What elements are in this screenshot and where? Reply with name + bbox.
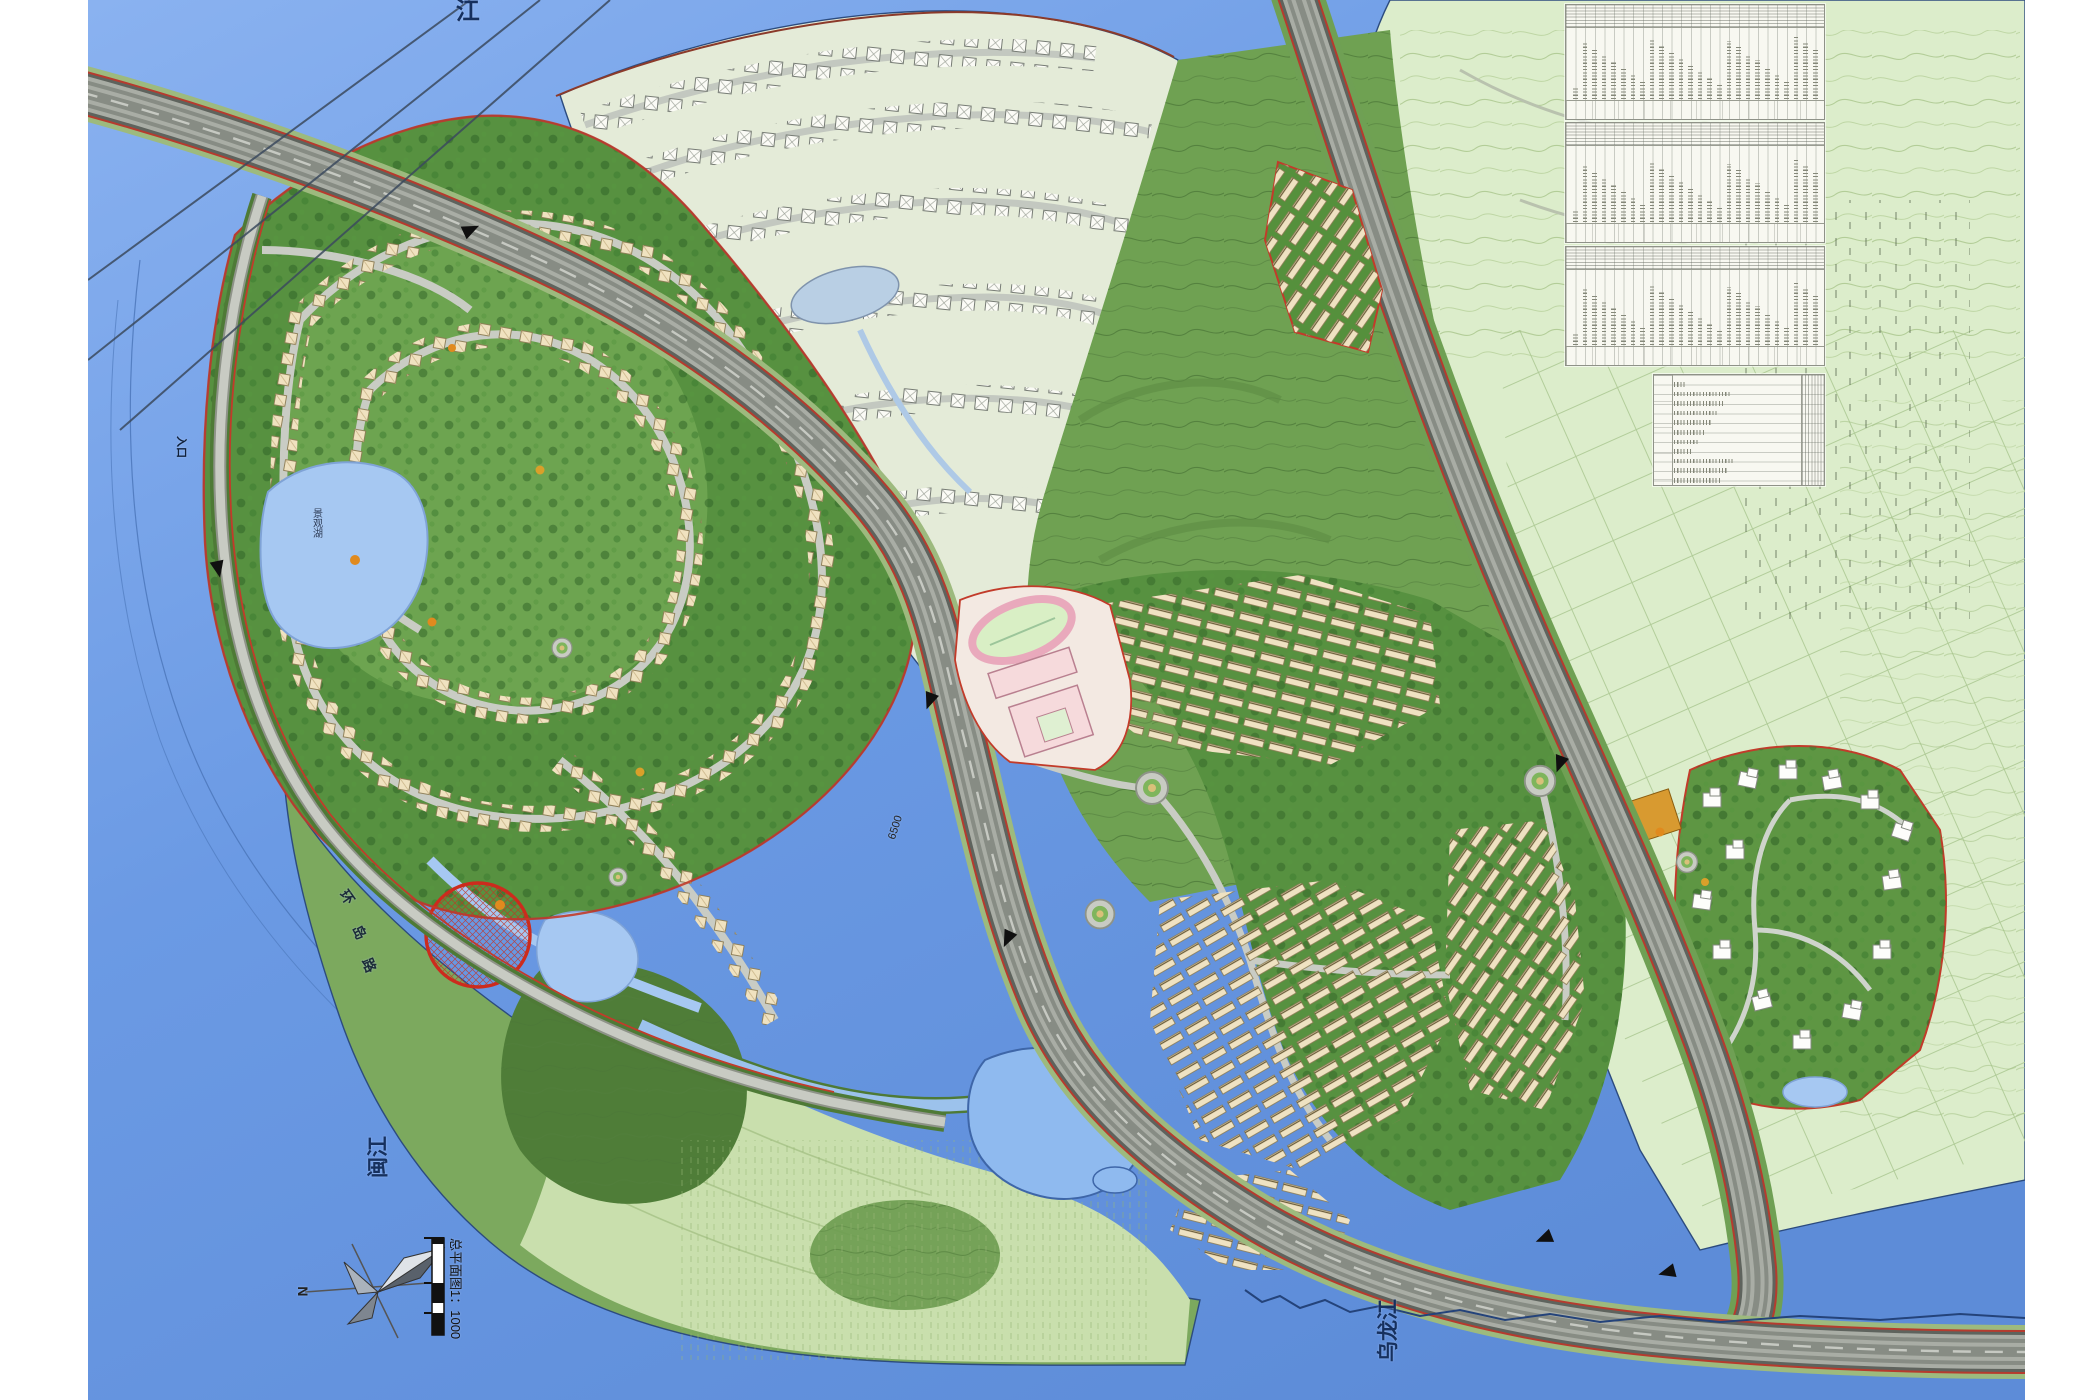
table-text-column bbox=[1669, 51, 1674, 99]
table-text-column bbox=[1583, 288, 1588, 345]
table-text-column bbox=[1669, 174, 1674, 222]
table-text-column bbox=[1592, 49, 1597, 99]
table-text-column bbox=[1765, 313, 1770, 345]
table-text-column bbox=[1727, 164, 1732, 222]
table-text-column bbox=[1650, 161, 1655, 222]
table-text-column bbox=[1674, 420, 1711, 425]
table-text-column bbox=[1621, 315, 1626, 345]
table-text-column bbox=[1611, 62, 1616, 99]
table-text-column bbox=[1784, 326, 1789, 345]
table-text-column bbox=[1717, 330, 1722, 345]
table-text-column bbox=[1631, 75, 1636, 99]
table-text-column bbox=[1679, 181, 1684, 222]
table-text-column bbox=[1784, 80, 1789, 99]
indicator-table-3 bbox=[1565, 246, 1825, 366]
table-text-column bbox=[1674, 392, 1731, 397]
table-text-column bbox=[1746, 300, 1751, 345]
table-text-column bbox=[1611, 308, 1616, 345]
table-text-column bbox=[1592, 172, 1597, 222]
table-text-column bbox=[1755, 60, 1760, 99]
table-text-column bbox=[1674, 382, 1687, 387]
table-text-column bbox=[1698, 71, 1703, 99]
table-text-column bbox=[1794, 283, 1799, 345]
table-text-column bbox=[1755, 306, 1760, 345]
table-text-column bbox=[1674, 401, 1724, 406]
table-text-column bbox=[1659, 45, 1664, 99]
table-text-column bbox=[1775, 320, 1780, 345]
table-text-column bbox=[1688, 65, 1693, 99]
table-text-column bbox=[1813, 296, 1818, 345]
table-text-column bbox=[1621, 192, 1626, 222]
table-text-column bbox=[1813, 50, 1818, 99]
table-text-column bbox=[1659, 291, 1664, 345]
table-text-column bbox=[1736, 170, 1741, 222]
table-text-column bbox=[1631, 198, 1636, 222]
river-label-wulongjiang: 乌龙江 bbox=[1378, 1299, 1400, 1362]
table-text-column bbox=[1698, 194, 1703, 222]
indicator-table-1-footer bbox=[1566, 100, 1824, 119]
table-text-column bbox=[1592, 295, 1597, 345]
indicator-table-2-footer bbox=[1566, 223, 1824, 242]
table-text-column bbox=[1803, 43, 1808, 99]
table-text-column bbox=[1794, 160, 1799, 222]
lake-label: 景观湖 bbox=[310, 508, 321, 538]
table-text-column bbox=[1727, 287, 1732, 345]
table-text-column bbox=[1765, 190, 1770, 222]
indicator-table-4-wrap bbox=[1653, 374, 1823, 484]
table-text-column bbox=[1674, 430, 1704, 435]
table-text-column bbox=[1765, 67, 1770, 99]
table-text-column bbox=[1573, 209, 1578, 222]
table-text-column bbox=[1679, 58, 1684, 99]
table-text-column bbox=[1707, 201, 1712, 222]
indicator-table-4-footer bbox=[1654, 375, 1673, 485]
table-text-column bbox=[1717, 207, 1722, 222]
table-text-column bbox=[1674, 449, 1691, 454]
indicator-table-4 bbox=[1653, 374, 1825, 486]
table-text-column bbox=[1813, 173, 1818, 222]
table-text-column bbox=[1679, 304, 1684, 345]
table-text-column bbox=[1775, 197, 1780, 222]
master-plan-page: 闽江 闽江 乌龙江 环 岛 路 入口 景观湖 6500 总平面图1：1000 N bbox=[0, 0, 2100, 1400]
table-text-column bbox=[1674, 440, 1698, 445]
river-label-minjiang-top: 闽江 bbox=[452, 0, 477, 22]
table-text-column bbox=[1707, 78, 1712, 99]
north-letter: N bbox=[296, 1286, 311, 1296]
table-text-column bbox=[1746, 177, 1751, 222]
indicator-table-1 bbox=[1565, 4, 1825, 120]
river-label-minjiang-left: 闽江 bbox=[368, 1136, 390, 1178]
table-text-column bbox=[1573, 86, 1578, 99]
table-text-column bbox=[1755, 183, 1760, 222]
table-text-column bbox=[1659, 168, 1664, 222]
table-text-column bbox=[1717, 84, 1722, 99]
table-text-column bbox=[1650, 38, 1655, 99]
table-text-column bbox=[1640, 328, 1645, 345]
indicator-table-2 bbox=[1565, 122, 1825, 243]
table-text-column bbox=[1674, 468, 1728, 473]
table-text-column bbox=[1803, 166, 1808, 222]
table-text-column bbox=[1650, 284, 1655, 345]
table-text-column bbox=[1688, 188, 1693, 222]
table-text-column bbox=[1674, 478, 1722, 483]
table-text-column bbox=[1583, 42, 1588, 99]
table-text-column bbox=[1775, 74, 1780, 99]
table-text-column bbox=[1640, 205, 1645, 222]
table-text-column bbox=[1602, 302, 1607, 345]
table-text-column bbox=[1746, 54, 1751, 99]
table-text-column bbox=[1602, 56, 1607, 99]
scale-title: 总平面图1：1000 bbox=[448, 1238, 462, 1339]
table-text-column bbox=[1736, 293, 1741, 345]
table-text-column bbox=[1583, 165, 1588, 222]
table-text-column bbox=[1674, 411, 1717, 416]
table-text-column bbox=[1688, 311, 1693, 345]
table-text-column bbox=[1736, 47, 1741, 99]
table-text-column bbox=[1794, 37, 1799, 99]
table-text-column bbox=[1621, 69, 1626, 99]
table-text-column bbox=[1602, 179, 1607, 222]
indicator-table-1-header bbox=[1566, 5, 1824, 28]
table-text-column bbox=[1640, 82, 1645, 99]
table-text-column bbox=[1611, 185, 1616, 222]
table-text-column bbox=[1803, 289, 1808, 345]
indicator-table-3-footer bbox=[1566, 346, 1824, 365]
table-text-column bbox=[1631, 321, 1636, 345]
table-text-column bbox=[1573, 332, 1578, 345]
table-text-column bbox=[1707, 324, 1712, 345]
indicator-table-2-header bbox=[1566, 123, 1824, 146]
indicator-table-3-header bbox=[1566, 247, 1824, 270]
table-text-column bbox=[1674, 459, 1735, 464]
table-text-column bbox=[1669, 297, 1674, 345]
table-text-column bbox=[1727, 41, 1732, 99]
table-text-column bbox=[1784, 203, 1789, 222]
entrance-label: 入口 bbox=[174, 436, 186, 458]
table-text-column bbox=[1698, 317, 1703, 345]
indicator-table-4-header bbox=[1801, 375, 1824, 485]
